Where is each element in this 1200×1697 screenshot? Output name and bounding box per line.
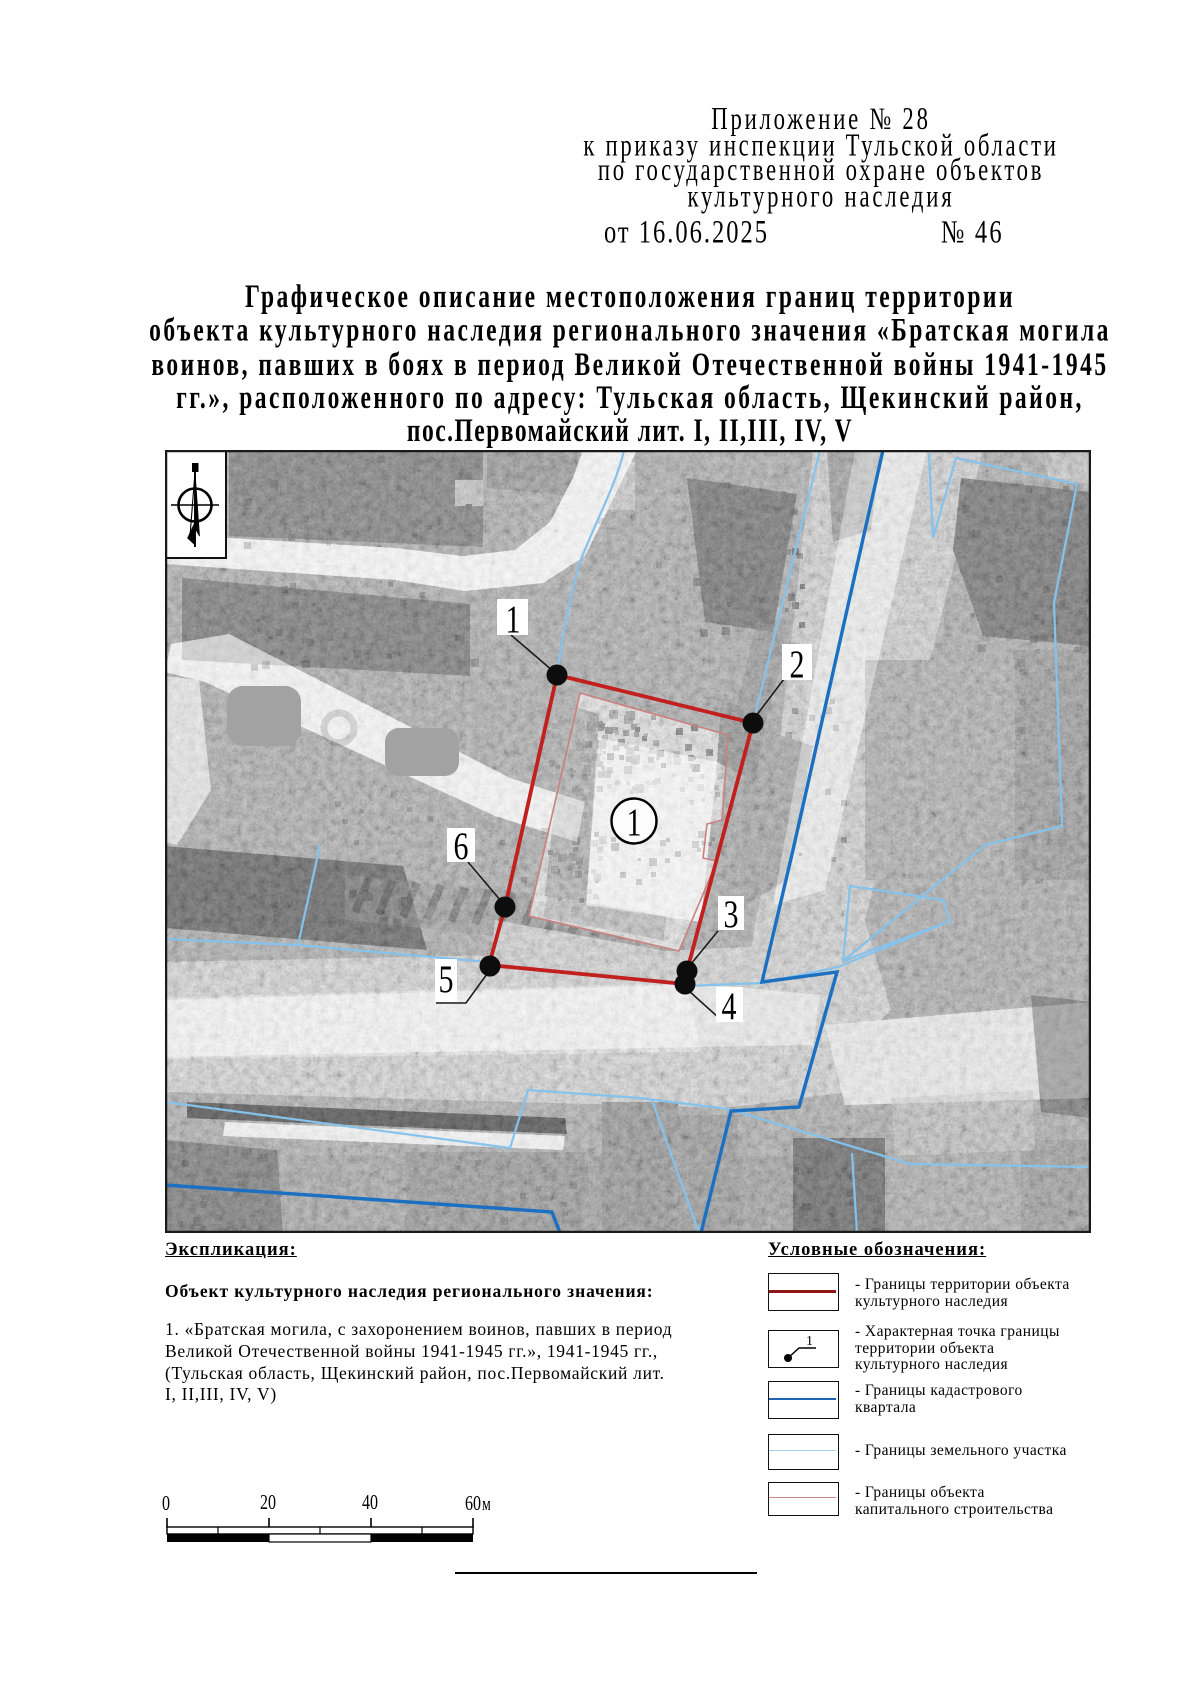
svg-text:0: 0 (162, 1492, 170, 1516)
svg-text:1: 1 (627, 800, 642, 844)
svg-text:1: 1 (806, 1334, 813, 1349)
svg-text:20: 20 (260, 1491, 276, 1515)
svg-text:4: 4 (722, 984, 737, 1028)
svg-text:3: 3 (724, 892, 739, 936)
svg-text:м: м (482, 1493, 490, 1514)
svg-text:2: 2 (790, 642, 805, 686)
svg-text:40: 40 (362, 1491, 378, 1515)
svg-text:6: 6 (454, 824, 469, 868)
svg-text:5: 5 (439, 957, 454, 1001)
svg-text:60: 60 (465, 1492, 481, 1516)
svg-text:1: 1 (506, 597, 521, 641)
